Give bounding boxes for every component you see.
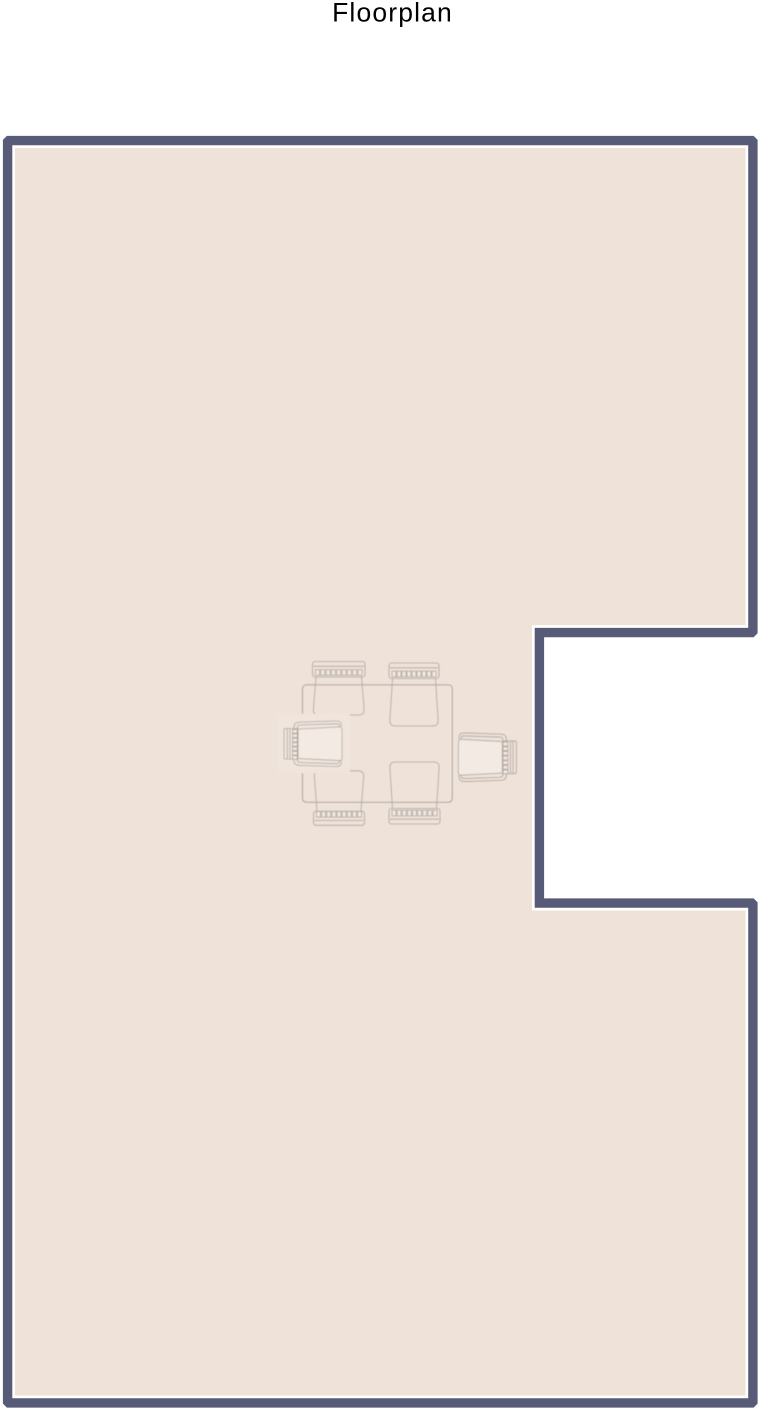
svg-text:Floorplan: Floorplan <box>332 0 453 28</box>
